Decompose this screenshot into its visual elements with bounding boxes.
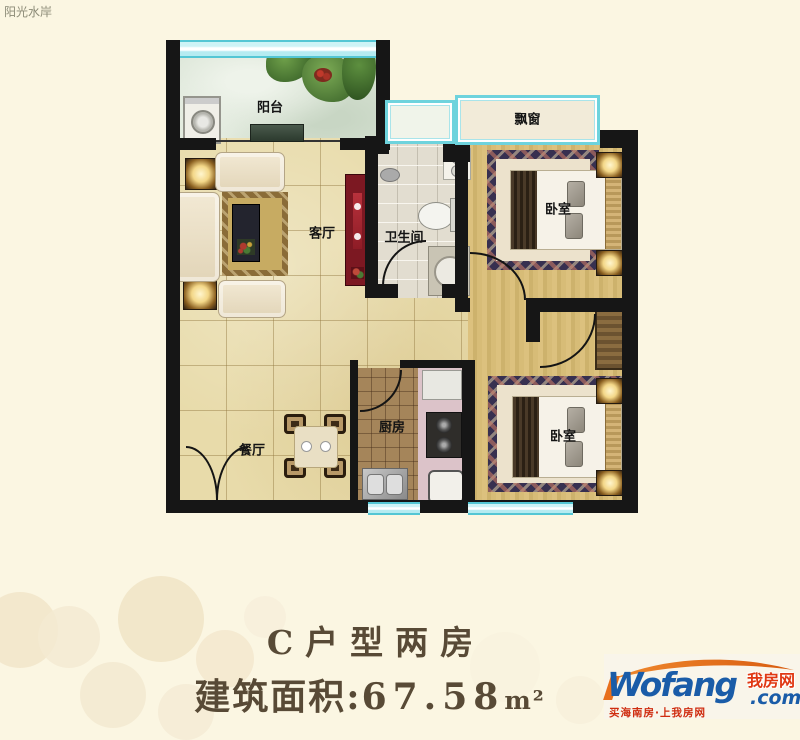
stove [426, 412, 462, 458]
area-line: 建筑面积:67.58m² [130, 668, 610, 720]
floor-lamp [185, 158, 217, 190]
dining-table [294, 426, 338, 468]
project-name: 阳光水岸 [4, 3, 52, 20]
bay-window: 飘窗 [455, 95, 600, 145]
wall [455, 144, 468, 298]
kitchen-sink [362, 468, 408, 500]
fridge [422, 370, 462, 400]
living-room-label: 客厅 [309, 228, 335, 241]
logo-domain: .com [750, 687, 800, 709]
wall [350, 360, 358, 503]
logo-brand-text: Wofang [607, 668, 736, 701]
wall [166, 138, 216, 150]
coffee-table [232, 204, 260, 262]
unit-type-title: C户型两房 [142, 616, 610, 664]
bathroom-window [385, 100, 455, 144]
bedside-lamp [596, 470, 624, 496]
bathroom-label: 卫生间 [384, 232, 423, 245]
bedside-lamp [596, 250, 624, 276]
watermark-circle [38, 606, 100, 668]
page: { "page": { "project_name": "阳光水岸", "bac… [0, 0, 800, 719]
balcony-sliding-door [250, 124, 304, 142]
balcony-label: 阳台 [257, 102, 283, 115]
dining-room-label: 餐厅 [239, 445, 265, 458]
shower-head [380, 168, 400, 182]
wall [365, 144, 378, 298]
wall [526, 312, 540, 342]
sofa-three-seat [174, 192, 220, 282]
area-unit: m² [504, 686, 545, 715]
wall [442, 284, 468, 298]
wofang-logo[interactable]: Wofang 我房网 .com 买海南房·上我房网 [604, 654, 800, 719]
sofa-loveseat [218, 280, 286, 318]
wall [622, 130, 638, 513]
bedroom-window [468, 502, 573, 515]
floor-lamp [183, 278, 217, 310]
bay-window-label: 飘窗 [514, 114, 540, 127]
balcony-window [180, 40, 376, 58]
dining-set [282, 414, 348, 478]
wall [166, 40, 180, 503]
wall [462, 360, 475, 503]
bedroom-top-label: 卧室 [545, 204, 571, 217]
logo-tagline: 买海南房·上我房网 [609, 705, 706, 720]
bedroom-bottom-label: 卧室 [550, 431, 576, 444]
caption: C户型两房 建筑面积:67.58m² [130, 616, 610, 720]
area-value: 67.58 [362, 676, 505, 718]
sofa-loveseat [215, 152, 285, 192]
bedside-lamp [596, 152, 624, 178]
washing-machine [183, 96, 221, 144]
wall [365, 284, 398, 298]
wall [455, 298, 470, 312]
floor-plan: 飘窗 阳台 客厅 卫生间 卧室 餐厅 厨房 卧室 [166, 40, 638, 513]
wash-basin [428, 470, 464, 504]
kitchen-label: 厨房 [379, 422, 405, 435]
wall [526, 298, 622, 312]
kitchen-window [368, 502, 420, 515]
toilet [418, 202, 454, 230]
bedside-lamp [596, 378, 624, 404]
area-label: 建筑面积: [194, 676, 361, 718]
living-rug [222, 192, 288, 276]
